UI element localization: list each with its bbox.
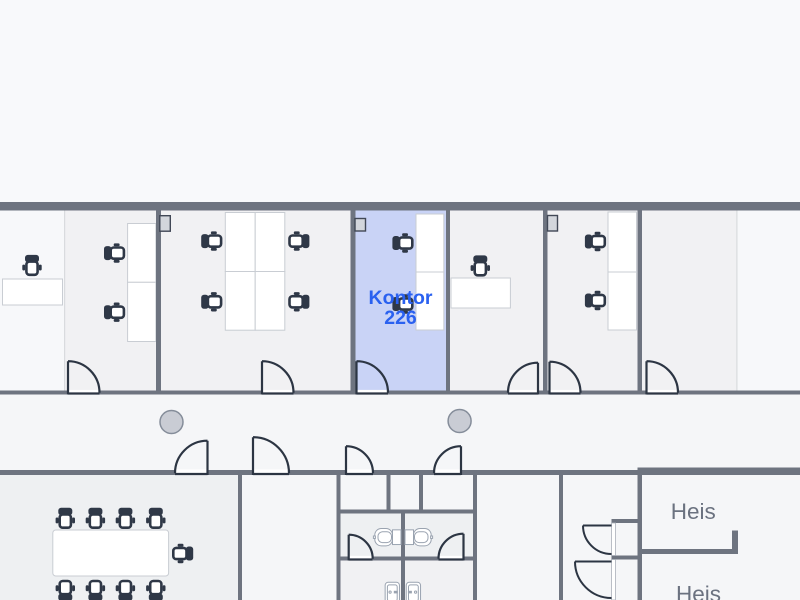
svg-text:226: 226 [384,307,417,329]
svg-text:Heis: Heis [671,499,716,524]
svg-text:Kontor: Kontor [369,287,433,309]
svg-text:Heis: Heis [676,582,721,600]
